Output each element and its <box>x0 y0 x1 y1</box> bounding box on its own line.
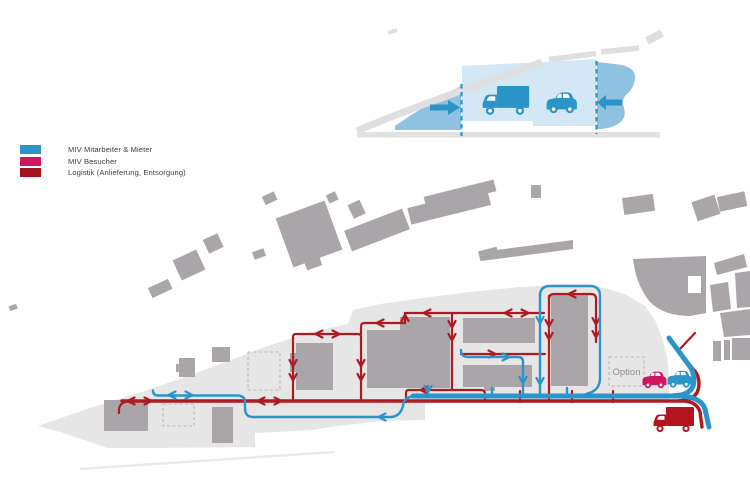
legend-label: Logistik (Anlieferung, Entsorgung) <box>68 168 186 177</box>
mobility-site-plan: Option MIV Mitarbeiter & Mieter MIV Besu… <box>0 0 750 500</box>
truck-icon-logistics <box>654 407 695 432</box>
legend: MIV Mitarbeiter & Mieter MIV Besucher Lo… <box>20 144 186 179</box>
legend-item-miv-employees: MIV Mitarbeiter & Mieter <box>20 144 186 156</box>
legend-label: MIV Mitarbeiter & Mieter <box>68 145 152 154</box>
car-icon-employee <box>667 371 691 388</box>
legend-swatch-pink <box>20 157 41 166</box>
legend-swatch-darkred <box>20 168 41 177</box>
legend-label: MIV Besucher <box>68 157 117 166</box>
zone-fill-right <box>597 62 635 129</box>
legend-item-miv-visitors: MIV Besucher <box>20 156 186 168</box>
option-label: Option <box>613 367 641 378</box>
background-street-curve <box>80 452 335 469</box>
site-plan-canvas: Option <box>0 0 750 500</box>
inset-diagram <box>357 30 662 138</box>
legend-item-logistics: Logistik (Anlieferung, Entsorgung) <box>20 167 186 179</box>
legend-swatch-blue <box>20 145 41 154</box>
